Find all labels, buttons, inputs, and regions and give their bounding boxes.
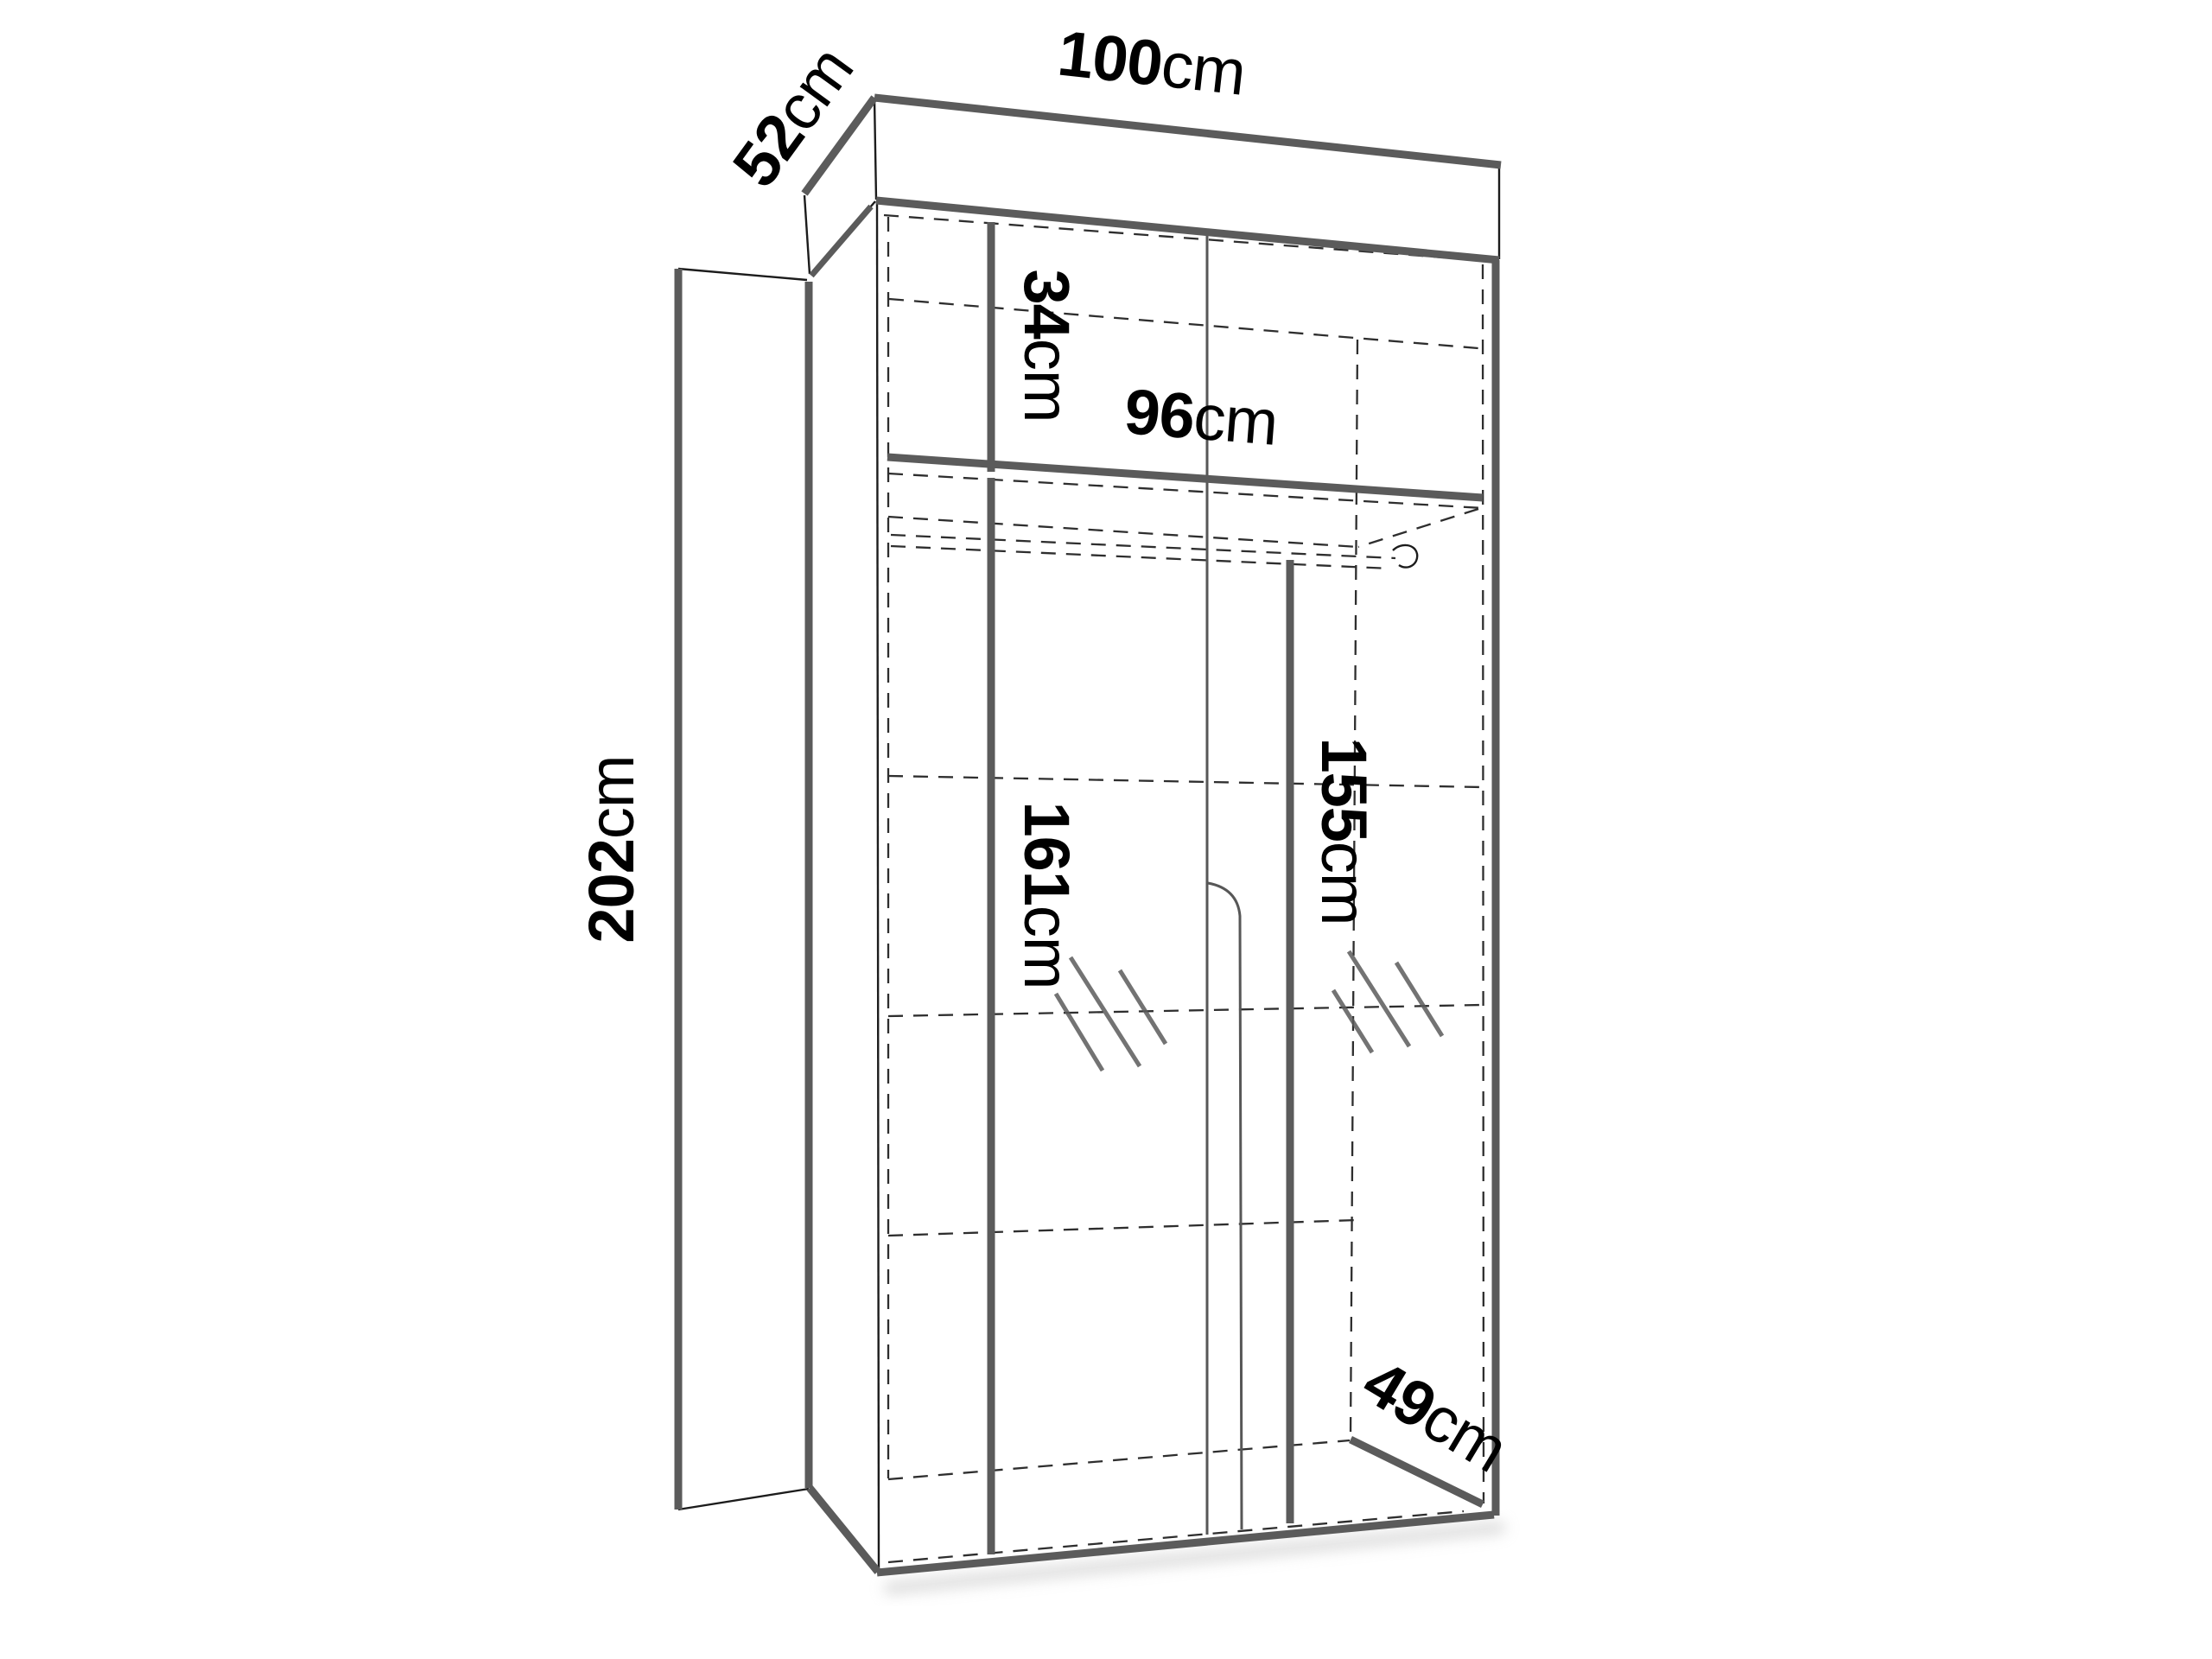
mid-upper-dashed (888, 776, 1483, 787)
top-width-edge-100 (874, 98, 1501, 165)
cabinet-front-left-edge (877, 201, 879, 1571)
shelf-edge-96 (887, 457, 1483, 498)
dim-label-inner-width: 96cm (1122, 375, 1281, 459)
hanging-rod-top-dashed (891, 535, 1395, 558)
bottom-left-depth-edge (810, 1488, 878, 1572)
dim-label-left-inner-height: 161cm (1011, 801, 1083, 988)
front-top-edge (876, 200, 1499, 260)
mirror-mark-right-3 (1396, 963, 1442, 1036)
dim-label-total-height: 202cm (575, 755, 647, 943)
mirror-mark-left-1 (1056, 994, 1103, 1071)
top-slab-back-left-edge (804, 195, 810, 274)
diagram-canvas: 100cm 52cm 34cm 96cm 202cm 161cm 155cm 4… (0, 0, 2212, 1659)
mirror-mark-left-3 (1120, 970, 1166, 1044)
shelf-back-edge-dashed (888, 517, 1358, 547)
interior-right-wall-dashed (1483, 264, 1484, 1503)
dim-label-top-depth: 52cm (719, 34, 867, 200)
dimension-labels: 100cm 52cm 34cm 96cm 202cm 161cm 155cm 4… (575, 16, 1519, 1485)
interior-floor-dashed (888, 1440, 1350, 1479)
shadow-bottom (890, 1528, 1499, 1588)
wardrobe-dimension-diagram: 100cm 52cm 34cm 96cm 202cm 161cm 155cm 4… (0, 0, 2212, 1659)
side-panel-top-edge (678, 269, 807, 280)
side-panel-bottom-edge (678, 1489, 809, 1510)
hanging-rod-bottom-dashed (891, 546, 1390, 569)
mid-lower-dashed (888, 1005, 1483, 1016)
left-side-top-short-edge (811, 207, 871, 276)
hanging-rod-hook (1393, 545, 1417, 568)
dim-label-top-width: 100cm (1054, 16, 1249, 108)
dim-label-top-section-height: 34cm (1011, 270, 1083, 423)
dim-label-right-inner-height: 155cm (1308, 737, 1380, 925)
interior-ceiling-front-dashed (889, 299, 1478, 348)
shelf-right-depth-dashed (1358, 509, 1478, 547)
right-door-edge-handle (1208, 883, 1242, 1529)
top-slab-left-end (874, 99, 876, 200)
